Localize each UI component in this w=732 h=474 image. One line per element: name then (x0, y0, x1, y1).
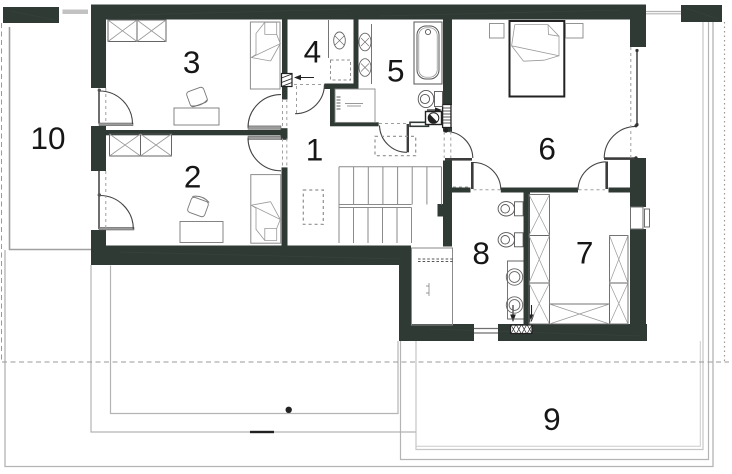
svg-text:2: 2 (184, 158, 202, 194)
svg-text:7: 7 (576, 235, 594, 271)
svg-text:10: 10 (30, 120, 65, 156)
svg-text:8: 8 (472, 235, 490, 271)
svg-text:5: 5 (387, 52, 405, 88)
svg-text:4: 4 (304, 33, 322, 69)
svg-text:3: 3 (183, 44, 201, 80)
svg-text:1: 1 (306, 131, 324, 167)
svg-text:9: 9 (543, 401, 561, 437)
svg-text:6: 6 (538, 131, 556, 167)
